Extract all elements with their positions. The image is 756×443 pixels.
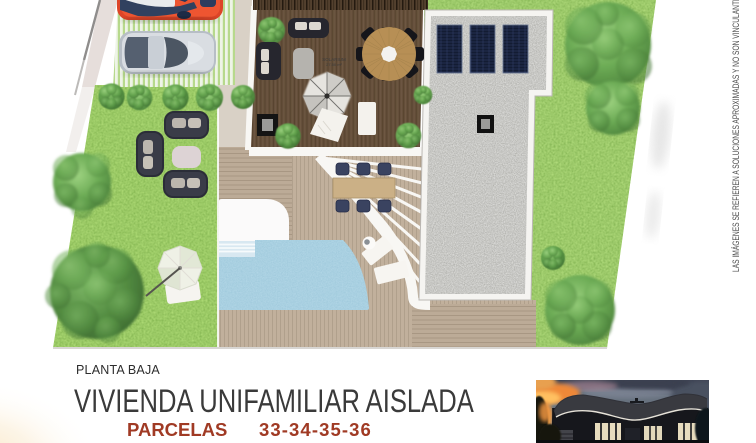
svg-text:27.50 m²: 27.50 m² bbox=[326, 62, 342, 67]
